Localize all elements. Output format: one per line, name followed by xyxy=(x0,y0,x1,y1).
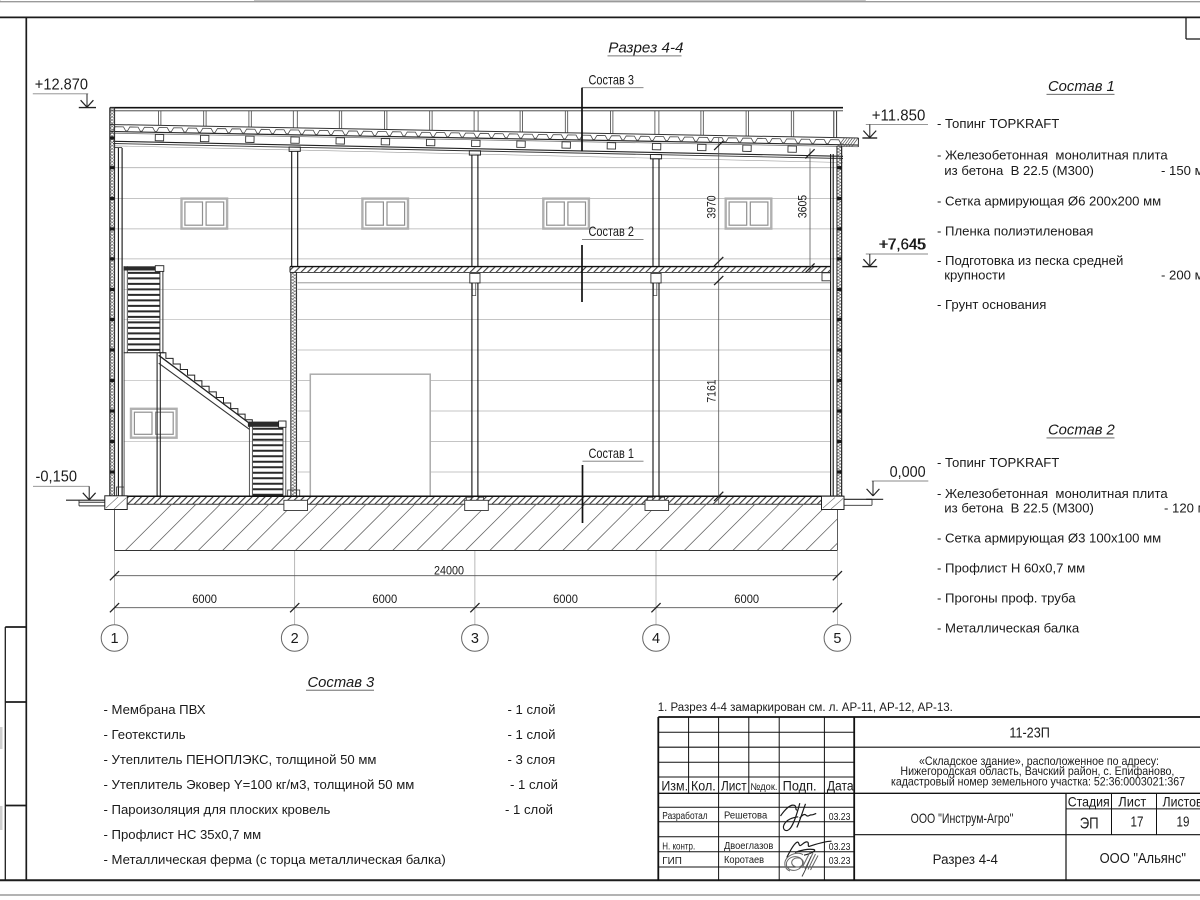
svg-text:- Профлист НС 35х0,7 мм: - Профлист НС 35х0,7 мм xyxy=(104,827,262,842)
svg-text:ООО "Альянс": ООО "Альянс" xyxy=(1100,850,1186,867)
svg-text:Разрез 4-4: Разрез 4-4 xyxy=(933,852,999,867)
svg-text:- Сетка армирующая Ø3 100х100: - Сетка армирующая Ø3 100х100 мм xyxy=(937,530,1161,545)
svg-text:1: 1 xyxy=(110,631,118,647)
svg-text:- Геотекстиль: - Геотекстиль xyxy=(104,727,186,742)
svg-text:- Сетка армирующая Ø6 200х200: - Сетка армирующая Ø6 200х200 мм xyxy=(937,193,1161,208)
svg-text:Состав 1: Состав 1 xyxy=(1048,79,1115,95)
svg-text:7161: 7161 xyxy=(704,379,718,402)
svg-text:- Железобетонная монолитная п: - Железобетонная монолитная плита xyxy=(937,147,1168,162)
svg-text:1. Разрез 4-4 замаркирован см.: 1. Разрез 4-4 замаркирован см. л. АР-11,… xyxy=(658,702,953,714)
svg-text:4: 4 xyxy=(652,631,660,647)
svg-text:Изм.: Изм. xyxy=(661,777,688,793)
svg-text:Разрез 4-4: Разрез 4-4 xyxy=(608,40,683,57)
svg-text:- Мембрана ПВХ: - Мембрана ПВХ xyxy=(104,702,206,717)
svg-text:03.23: 03.23 xyxy=(829,856,851,867)
svg-text:- Пароизоляция для плоских кро: - Пароизоляция для плоских кровель xyxy=(104,802,331,817)
svg-text:- 150 мм: - 150 мм xyxy=(1161,163,1200,178)
svg-text:11-23П: 11-23П xyxy=(1009,726,1050,742)
svg-text:- Пленка полиэтиленовая: - Пленка полиэтиленовая xyxy=(937,224,1093,239)
svg-text:ГИП: ГИП xyxy=(662,856,682,867)
svg-text:Состав 1: Состав 1 xyxy=(589,446,635,461)
svg-text:Двоеглазов: Двоеглазов xyxy=(724,841,773,852)
svg-text:Подп.: Подп. xyxy=(783,777,817,793)
svg-text:- Утеплитель Эковер Y=100 кг/м: - Утеплитель Эковер Y=100 кг/м3, толщино… xyxy=(104,777,415,792)
svg-text:из бетона В 22.5 (М300): из бетона В 22.5 (М300) xyxy=(937,163,1094,178)
svg-text:5: 5 xyxy=(833,631,841,647)
svg-text:Стадия: Стадия xyxy=(1068,795,1110,810)
svg-text:3: 3 xyxy=(471,631,479,647)
svg-text:- 1 слой: - 1 слой xyxy=(505,802,553,817)
svg-text:- 1 слой: - 1 слой xyxy=(508,727,556,742)
svg-text:Состав 3: Состав 3 xyxy=(589,72,635,87)
svg-text:- Железобетонная монолитная п: - Железобетонная монолитная плита xyxy=(937,486,1168,501)
svg-text:Состав 2: Состав 2 xyxy=(1048,423,1116,439)
svg-text:- 200 мм: - 200 мм xyxy=(1161,268,1200,283)
svg-text:Состав 3: Состав 3 xyxy=(308,675,376,691)
svg-text:03.23: 03.23 xyxy=(829,812,851,823)
svg-text:- 3 слоя: - 3 слоя xyxy=(508,752,556,767)
svg-text:Решетова: Решетова xyxy=(724,811,768,822)
svg-text:2: 2 xyxy=(291,631,299,647)
svg-text:- Металлическая балка: - Металлическая балка xyxy=(937,621,1080,636)
svg-text:+11.850: +11.850 xyxy=(872,108,926,125)
svg-text:- Прогоны проф. труба: - Прогоны проф. труба xyxy=(937,591,1076,606)
svg-text:Коротаев: Коротаев xyxy=(724,855,764,866)
svg-text:крупности: крупности xyxy=(937,268,1005,283)
svg-text:-0,150: -0,150 xyxy=(36,469,78,486)
svg-text:из бетона В 22.5 (М300): из бетона В 22.5 (М300) xyxy=(937,501,1094,516)
svg-text:03.23: 03.23 xyxy=(829,842,851,853)
svg-text:+12.870: +12.870 xyxy=(35,76,89,93)
svg-text:Состав 2: Состав 2 xyxy=(589,224,635,239)
svg-text:Лист: Лист xyxy=(721,777,747,793)
svg-text:Дата: Дата xyxy=(827,777,854,793)
svg-text:Разработал: Разработал xyxy=(662,810,707,822)
svg-text:19: 19 xyxy=(1177,815,1190,831)
svg-text:- Грунт основания: - Грунт основания xyxy=(937,297,1046,312)
svg-text:3970: 3970 xyxy=(704,195,718,218)
svg-text:Н. контр.: Н. контр. xyxy=(662,841,695,852)
svg-text:6000: 6000 xyxy=(192,592,217,606)
svg-text:кадастровый номер земельного у: кадастровый номер земельного участка: 52… xyxy=(891,776,1185,789)
svg-text:6000: 6000 xyxy=(553,592,578,606)
svg-text:- 120 мм: - 120 мм xyxy=(1164,501,1200,516)
svg-text:0,000: 0,000 xyxy=(890,464,926,481)
svg-text:6000: 6000 xyxy=(372,592,397,606)
svg-text:- Утеплитель ПЕНОПЛЭКС, толщин: - Утеплитель ПЕНОПЛЭКС, толщиной 50 мм xyxy=(104,752,377,767)
svg-text:ЭП: ЭП xyxy=(1080,815,1099,832)
svg-text:3605: 3605 xyxy=(795,195,809,218)
svg-text:- Металлическая ферма (с торца: - Металлическая ферма (с торца металличе… xyxy=(104,852,446,867)
svg-text:Листов: Листов xyxy=(1163,795,1200,810)
svg-text:+7,645: +7,645 xyxy=(880,236,925,253)
svg-text:- Топинг TOPKRAFT: - Топинг TOPKRAFT xyxy=(937,116,1059,131)
svg-text:№док.: №док. xyxy=(750,782,777,793)
svg-text:- Профлист Н 60х0,7 мм: - Профлист Н 60х0,7 мм xyxy=(937,561,1085,576)
svg-text:- Подготовка из песка средней: - Подготовка из песка средней xyxy=(937,253,1123,268)
svg-text:6000: 6000 xyxy=(734,592,759,606)
svg-text:- Топинг TOPKRAFT: - Топинг TOPKRAFT xyxy=(937,455,1059,470)
svg-text:24000: 24000 xyxy=(434,564,464,578)
svg-text:17: 17 xyxy=(1131,815,1144,831)
svg-text:ООО "Инструм-Агро": ООО "Инструм-Агро" xyxy=(911,811,1014,826)
svg-text:Лист: Лист xyxy=(1118,795,1147,810)
svg-text:- 1 слой: - 1 слой xyxy=(510,777,558,792)
svg-text:Кол.: Кол. xyxy=(691,777,716,793)
svg-text:- 1 слой: - 1 слой xyxy=(508,702,556,717)
